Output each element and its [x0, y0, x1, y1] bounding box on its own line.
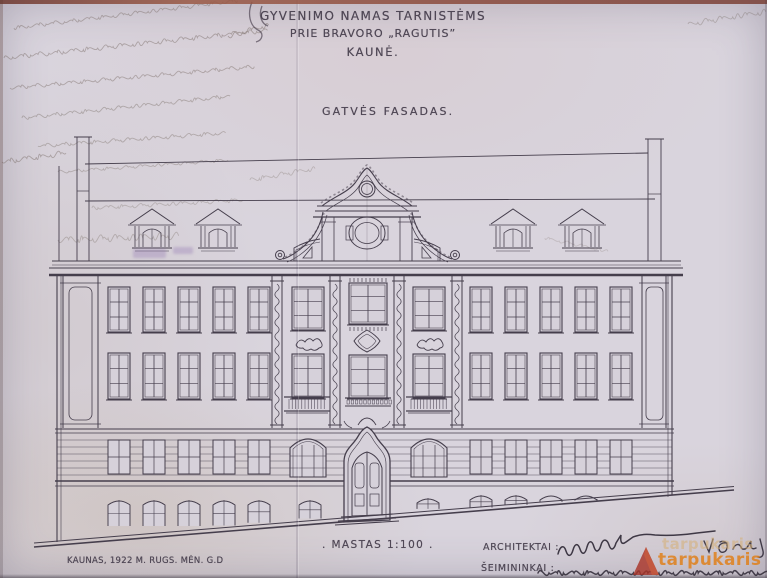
watermark-logo-icon	[632, 546, 660, 576]
scan-edge-bottom	[0, 574, 767, 578]
scanned-drawing-sheet: GYVENIMO NAMAS TARNISTĖMS PRIE BRAVORO „…	[0, 0, 767, 578]
watermark: tarpukaris tarpukaris	[628, 534, 767, 578]
scan-edge-left	[0, 0, 3, 578]
signatures	[0, 0, 767, 578]
scan-edge-top	[0, 0, 767, 4]
watermark-text: tarpukaris	[658, 550, 761, 570]
